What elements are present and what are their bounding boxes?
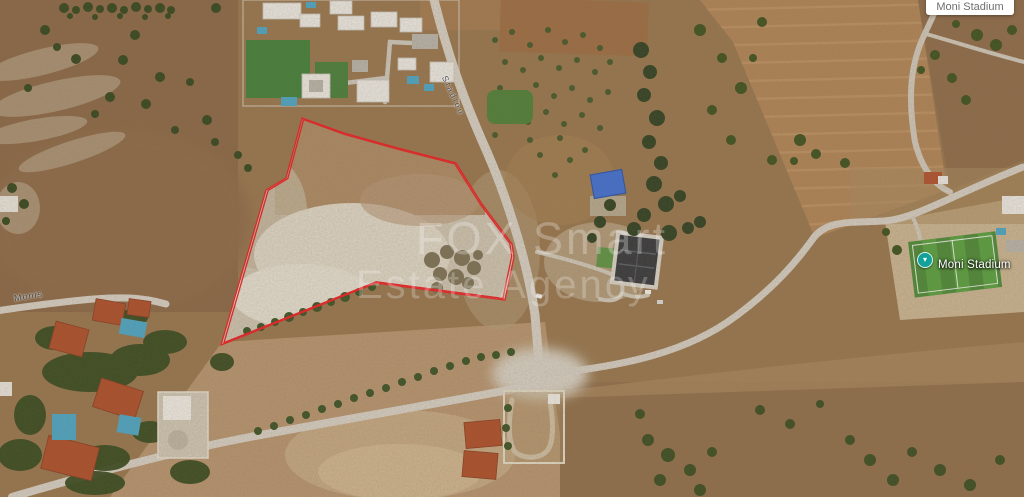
terrain-texture [0, 0, 1024, 497]
stadium-marker-icon[interactable]: ▾ [917, 252, 933, 268]
stadium-poi-label[interactable]: Moni Stadium [938, 259, 1011, 271]
map-info-label[interactable]: Moni Stadium [926, 0, 1014, 15]
map-imagery [0, 0, 1024, 497]
satellite-map[interactable]: FOX Smart Estate Agency Monis Stadiou ▾ … [0, 0, 1024, 497]
